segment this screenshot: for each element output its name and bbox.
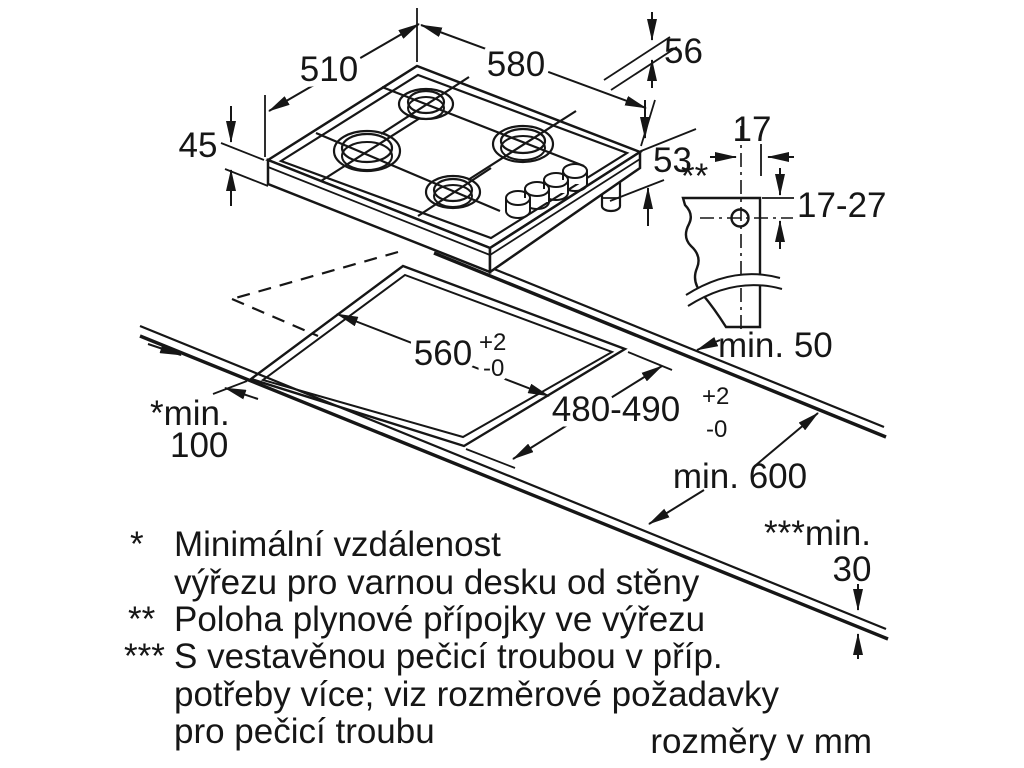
dim-min600-label: min. 600 xyxy=(673,457,807,496)
dim-min50-label: min. 50 xyxy=(718,326,833,365)
dimension-min-600: min. 600 xyxy=(649,413,818,524)
hob-top-face xyxy=(268,66,640,248)
hob-isometric-view xyxy=(268,66,640,272)
dim-480-490-label: 480-490 xyxy=(552,390,680,429)
dim-45-label: 45 xyxy=(179,126,218,165)
dim-56-label: 56 xyxy=(664,32,703,71)
dim-17-label: 17 xyxy=(733,110,772,149)
footnote-3-line-1: S vestavěnou pečicí troubou v příp. xyxy=(174,637,723,676)
projection-dash-left xyxy=(232,252,398,299)
dim-480-490-tol-minus: -0 xyxy=(706,416,727,443)
dimension-560: 560 +2 -0 xyxy=(337,314,549,396)
footnote-2-line-1: Poloha plynové přípojky ve výřezu xyxy=(174,600,705,639)
diagram-page: 510 580 56 53 45 xyxy=(0,0,1024,768)
dimension-56: 56 xyxy=(604,12,703,90)
footnotes: * Minimální vzdálenost výřezu pro varnou… xyxy=(124,525,872,761)
footnote-1-line-1: Minimální vzdálenost xyxy=(174,525,501,564)
cutout-ext-right xyxy=(628,352,672,370)
dim-560-tol-plus: +2 xyxy=(479,329,506,356)
dimension-17: 17 ** xyxy=(681,110,794,196)
dim-560-label: 560 xyxy=(414,334,472,373)
dim-min30-label: ***min. xyxy=(764,514,871,553)
projection-lines xyxy=(232,252,398,336)
footnote-3-line-2: potřeby více; viz rozměrové požadavky xyxy=(174,675,779,714)
dim-560-tol-minus: -0 xyxy=(483,355,504,382)
units-note: rozměry v mm xyxy=(650,722,872,761)
dimension-17-27: 17-27 xyxy=(762,168,887,249)
dim-min100-value: 100 xyxy=(170,426,228,465)
dimension-480-490: 480-490 +2 -0 xyxy=(513,366,729,459)
footnote-marker-3: *** xyxy=(124,637,165,676)
gas-position-marker: ** xyxy=(681,157,709,196)
dimension-min-50: min. 50 xyxy=(697,326,833,365)
dim-min30-value: 30 xyxy=(833,550,872,589)
dimension-45: 45 xyxy=(179,106,268,206)
footnote-1-line-2: výřezu pro varnou desku od stěny xyxy=(174,563,700,602)
dim-480-490-tol-plus: +2 xyxy=(702,383,729,410)
footnote-marker-1: * xyxy=(130,525,144,564)
projection-dash-right xyxy=(232,299,318,336)
installation-diagram: 510 580 56 53 45 xyxy=(0,0,1024,768)
cutout-ext-left xyxy=(213,381,247,394)
footnote-3-line-3: pro pečicí troubu xyxy=(174,712,435,751)
cutout-ext-bottom xyxy=(466,449,515,468)
dim-580-label: 580 xyxy=(487,45,545,84)
dim-510-label: 510 xyxy=(300,50,358,89)
footnote-marker-2: ** xyxy=(128,600,156,639)
dim-17-27-label: 17-27 xyxy=(797,186,887,225)
